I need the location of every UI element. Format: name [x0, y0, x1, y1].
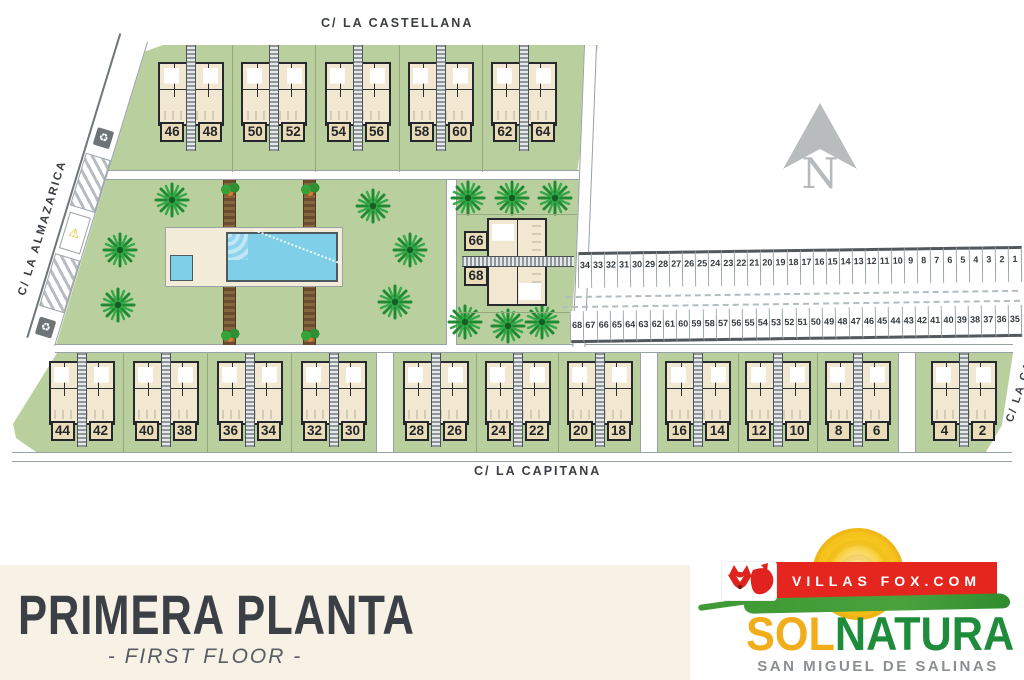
- duplex-plot: 12 10: [738, 353, 818, 452]
- unit-number-tags: 50 52: [233, 122, 315, 142]
- unit-number-tags: 24 22: [477, 421, 558, 441]
- unit-number: 66: [464, 231, 488, 251]
- unit-number-tags: 4 2: [917, 421, 1010, 441]
- parking-space: 62: [650, 310, 664, 342]
- parking-space: 22: [735, 250, 749, 286]
- brand-natura: NATURA: [835, 607, 1014, 660]
- palm-tree-icon: [353, 186, 393, 226]
- duplex-plot: 44 42: [40, 353, 123, 452]
- parking-space: 7: [931, 247, 945, 283]
- brand-sol: SOL: [746, 607, 835, 660]
- parking-space: 10: [891, 248, 905, 284]
- page-subtitle: - FIRST FLOOR -: [20, 645, 390, 669]
- unit-number: 48: [198, 122, 222, 142]
- unit-number: 10: [785, 421, 809, 441]
- pool-lane-rope: [255, 230, 342, 265]
- parking-space: 39: [955, 306, 969, 338]
- unit-number-tags: 46 48: [150, 122, 232, 142]
- unit-number: 28: [405, 421, 429, 441]
- palm-tree-icon: [100, 230, 140, 270]
- parking-space: 58: [703, 309, 717, 341]
- page-title: PRIMERA PLANTA: [18, 582, 415, 647]
- palm-tree-icon: [522, 302, 562, 342]
- unit-number: 60: [448, 122, 472, 142]
- recycle-bins-icon: ♻: [35, 316, 57, 338]
- parking-space: 11: [878, 248, 892, 284]
- street-middle-lower: [55, 344, 1013, 353]
- fox-logo: [722, 562, 776, 600]
- north-arrow: N: [783, 103, 857, 195]
- duplex-plot: 32 30: [291, 353, 375, 452]
- palm-tree-icon: [375, 282, 415, 322]
- unit-number-tags: 54 56: [316, 122, 398, 142]
- parking-space: 12: [865, 248, 879, 284]
- parking-space: 42: [916, 306, 930, 338]
- unit-number: 46: [160, 122, 184, 142]
- parking-space: 2: [996, 246, 1010, 282]
- kids-pool: [170, 255, 193, 281]
- palm-tree-icon: [445, 302, 485, 342]
- palm-tree-icon: [448, 178, 488, 218]
- duplex-plot: 28 26: [395, 353, 476, 452]
- parking-space: 19: [774, 249, 788, 285]
- unit-number-tags: 32 30: [292, 421, 375, 441]
- unit-number: 56: [365, 122, 389, 142]
- parking-space: 18: [787, 249, 801, 285]
- parking-space: 43: [902, 306, 916, 338]
- plot-line: [457, 312, 573, 313]
- palm-tree-icon: [535, 178, 575, 218]
- unit-number: 44: [51, 421, 75, 441]
- parking-space: 57: [717, 309, 731, 341]
- duplex-plot: 46 48: [150, 45, 232, 172]
- driveway: [898, 353, 916, 452]
- unit-number-tags: 62 64: [483, 122, 565, 142]
- unit-number: 42: [89, 421, 113, 441]
- unit-number: 34: [257, 421, 281, 441]
- brand-location: SAN MIGUEL DE SALINAS: [748, 658, 1008, 675]
- parking-space: 67: [584, 311, 598, 343]
- unit-number: 14: [705, 421, 729, 441]
- parking-space: 20: [761, 249, 775, 285]
- duplex-plot: 4 2: [917, 353, 1010, 452]
- unit-number: 64: [531, 122, 555, 142]
- duplex-plot: 50 52: [232, 45, 315, 172]
- duplex-plot: 62 64: [482, 45, 565, 172]
- street-label-castellana: C/ LA CASTELLANA: [321, 16, 473, 30]
- pool-steps: [228, 234, 248, 260]
- parking-space: 23: [722, 250, 736, 286]
- duplex-plot: 40 38: [123, 353, 207, 452]
- unit-number-tags: 12 10: [739, 421, 818, 441]
- parking-space: 24: [709, 250, 723, 286]
- duplex-plot: 16 14: [659, 353, 738, 452]
- parking-space: 30: [631, 251, 645, 287]
- parking-space: 9: [905, 247, 919, 283]
- parking-space: 49: [823, 307, 837, 339]
- parking-space: 4: [970, 246, 984, 282]
- palm-tree-icon: [492, 178, 532, 218]
- parking-space: 32: [605, 252, 619, 288]
- unit-number-tags: 44 42: [40, 421, 123, 441]
- duplex-plot: 58 60: [399, 45, 482, 172]
- parking-space: 27: [670, 251, 684, 287]
- parking-space: 65: [611, 310, 625, 342]
- parking-space: 13: [852, 248, 866, 284]
- parking-space: 44: [889, 307, 903, 339]
- unit-number: 18: [607, 421, 631, 441]
- unit-number-tags: 28 26: [395, 421, 476, 441]
- unit-number-tags: 40 38: [124, 421, 207, 441]
- parking-space: 21: [748, 250, 762, 286]
- unit-number: 58: [410, 122, 434, 142]
- duplex-plot: 36 34: [207, 353, 291, 452]
- duplex-plot: 54 56: [315, 45, 398, 172]
- parking-space: 53: [770, 308, 784, 340]
- unit-number: 4: [933, 421, 957, 441]
- unit-number: 8: [827, 421, 851, 441]
- parking-space: 55: [743, 309, 757, 341]
- parking-space: 64: [624, 310, 638, 342]
- parking-space: 29: [644, 251, 658, 287]
- parking-space: 31: [618, 251, 632, 287]
- parking-space: 17: [800, 249, 814, 285]
- parking-row-upper: 3433323130292827262524232221201918171615…: [578, 246, 1022, 288]
- unit-number: 32: [303, 421, 327, 441]
- unit-number: 36: [219, 421, 243, 441]
- unit-number: 54: [327, 122, 351, 142]
- plot-line: [457, 214, 577, 215]
- driveway: [376, 353, 394, 452]
- parking-space: 40: [942, 306, 956, 338]
- unit-number: 22: [525, 421, 549, 441]
- unit-number: 30: [341, 421, 365, 441]
- parking-space: 51: [796, 308, 810, 340]
- flower-bed: [300, 328, 320, 343]
- parking-space: 36: [995, 305, 1009, 337]
- unit-number: 12: [747, 421, 771, 441]
- swimming-pool: [226, 232, 338, 282]
- unit-number: 2: [971, 421, 995, 441]
- parking-space: 38: [969, 305, 983, 337]
- top-blocks-row: 46 48 50 52 54 56: [150, 45, 565, 172]
- unit-number: 40: [135, 421, 159, 441]
- unit-number: 16: [667, 421, 691, 441]
- parking-space: 35: [1009, 305, 1023, 337]
- flower-bed: [220, 328, 240, 343]
- parking-space: 68: [571, 311, 585, 343]
- unit-number: 24: [487, 421, 511, 441]
- bottom-blocks-group-2: 28 26 24 22 20 18: [395, 353, 640, 452]
- duplex-plot: 8 6: [817, 353, 897, 452]
- duplex-plot: 24 22: [476, 353, 558, 452]
- street-capitana: [12, 452, 1012, 462]
- driveway: [640, 353, 658, 452]
- parking-space: 52: [783, 308, 797, 340]
- unit-number: 62: [493, 122, 517, 142]
- parking-space: 56: [730, 309, 744, 341]
- street-label-capitana: C/ LA CAPITANA: [474, 464, 601, 478]
- unit-number-tags: 36 34: [208, 421, 291, 441]
- fox-icon: [722, 562, 776, 600]
- unit-number: 6: [865, 421, 889, 441]
- unit-number-tags: 16 14: [659, 421, 738, 441]
- parking-space: 5: [957, 247, 971, 283]
- parking-space: 47: [849, 307, 863, 339]
- parking-space: 60: [677, 309, 691, 341]
- unit-number: 38: [173, 421, 197, 441]
- parking-space: 1: [1009, 246, 1023, 282]
- unit-number-tags: 58 60: [400, 122, 482, 142]
- flower-bed: [300, 182, 320, 197]
- parking-space: 8: [918, 247, 932, 283]
- parking-space: 46: [863, 307, 877, 339]
- parking-space: 26: [683, 250, 697, 286]
- parking-space: 61: [664, 310, 678, 342]
- palm-tree-icon: [152, 180, 192, 220]
- parking-space: 59: [690, 309, 704, 341]
- parking-space: 14: [839, 248, 853, 284]
- parking-space: 54: [756, 308, 770, 340]
- parking-space: 45: [876, 307, 890, 339]
- parking-space: 28: [657, 251, 671, 287]
- unit-number: 68: [464, 266, 488, 286]
- duplex-plot: 20 18: [558, 353, 640, 452]
- flower-bed: [220, 182, 240, 197]
- site-plan-page: ♻ ⚠ ♻ C/ LA CASTELLANA C/ LA ALMAZARICA …: [0, 0, 1024, 680]
- unit-number-tags: 8 6: [818, 421, 897, 441]
- parking-space: 37: [982, 305, 996, 337]
- palm-tree-icon: [98, 285, 138, 325]
- bottom-blocks-group-4: 4 2: [917, 353, 1010, 452]
- parking-space: 63: [637, 310, 651, 342]
- unit-number: 26: [443, 421, 467, 441]
- parking-space: 33: [592, 252, 606, 288]
- parking-space: 25: [696, 250, 710, 286]
- unit-number-tags: 20 18: [559, 421, 640, 441]
- parking-space: 6: [944, 247, 958, 283]
- brand-name: SOLNATURA: [746, 606, 1014, 661]
- bottom-blocks-group-3: 16 14 12 10 8 6: [659, 353, 897, 452]
- parking-space: 50: [810, 308, 824, 340]
- pool-deck: [165, 227, 343, 287]
- parking-space: 15: [826, 248, 840, 284]
- parking-space: 16: [813, 249, 827, 285]
- unit-number: 20: [569, 421, 593, 441]
- unit-number: 52: [281, 122, 305, 142]
- palm-tree-icon: [390, 230, 430, 270]
- recycle-bins-icon: ♻: [93, 127, 115, 149]
- unit-number: 50: [243, 122, 267, 142]
- parking-space: 48: [836, 307, 850, 339]
- parking-space: 3: [983, 246, 997, 282]
- parking-space: 66: [597, 311, 611, 343]
- aisle-marking: [566, 290, 1018, 298]
- parking-row-lower: 6867666564636261605958575655545352515049…: [570, 305, 1022, 343]
- parking-space: 34: [579, 252, 593, 288]
- north-letter: N: [802, 149, 839, 198]
- bottom-blocks-group-1: 44 42 40 38 36 34: [40, 353, 375, 452]
- parking-space: 41: [929, 306, 943, 338]
